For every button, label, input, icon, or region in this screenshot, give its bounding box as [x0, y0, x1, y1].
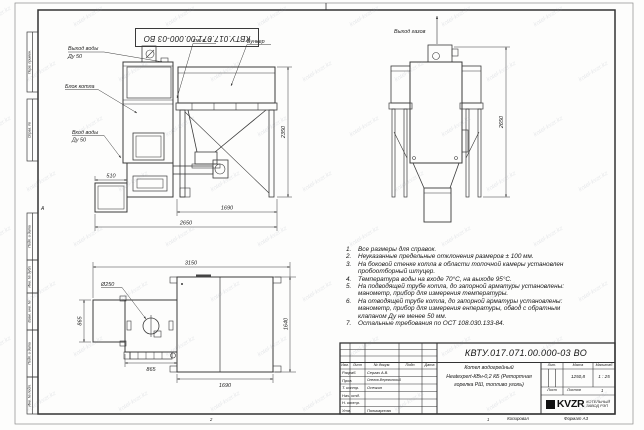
masshtab-value: 1 : 25	[593, 375, 615, 380]
doc-number-rotated: КВТУ.017.071.00.000-03 ВО	[135, 28, 259, 47]
tb-header-massa: Масса	[563, 364, 593, 368]
plan-dimensions	[79, 262, 296, 383]
dim-1690: 1690	[221, 206, 234, 212]
manufacturer-logo: KVZR КОТЕЛЬНЫЙ ЗАВОД РЭП	[542, 395, 614, 413]
margin-label: Взам. инв. №	[28, 300, 32, 322]
tb-header-izm: Изм.	[340, 364, 350, 368]
tb-header-list2: Лист	[541, 389, 563, 393]
margin-label: Перв. примен.	[28, 50, 32, 74]
tb-role: Нач. отд.	[342, 394, 365, 398]
dim-1640: 1640	[284, 317, 290, 330]
note-item: 2.Неуказанные предельные отклонения разм…	[346, 253, 578, 260]
logo-sub2: ЗАВОД РЭП	[586, 404, 610, 408]
label-water-out-dn: Ду 50	[67, 54, 82, 60]
dim-510: 510	[106, 174, 116, 180]
label-gas-out: Выход газов	[394, 29, 426, 35]
zone-col-2: 2	[209, 417, 213, 422]
tb-role: Пров.	[342, 379, 365, 383]
note-item: 7.Остальные требования по ОСТ 108.030.13…	[346, 320, 578, 327]
note-item: 5.На подводящей трубе котла, до запорной…	[346, 283, 578, 298]
tb-header-listov: Листов	[567, 389, 589, 393]
footer-zone-labels: 2 1	[209, 417, 489, 422]
kopiroval-label: Копировал	[498, 417, 538, 421]
dim-2650-side: 2650	[499, 115, 505, 129]
tb-header-data: Дата	[422, 364, 437, 368]
tb-role: Т. контр.	[342, 386, 365, 390]
format-label: Формат А3	[554, 417, 598, 421]
plan-view	[93, 275, 281, 373]
logo-mark-icon	[546, 400, 555, 409]
drawing-sheet: Перв. примен. Справ. № Подп. и дата Инв.…	[0, 0, 644, 430]
margin-box-labels: Перв. примен. Справ. № Подп. и дата Инв.…	[28, 50, 45, 407]
zone-col-1: 1	[487, 417, 489, 422]
tb-header-podp: Подп.	[399, 364, 422, 368]
zone-marker: А	[40, 206, 45, 212]
tb-header-masshtab: Масштаб	[593, 364, 615, 368]
front-view	[95, 46, 277, 212]
dim-2350: 2350	[281, 125, 287, 139]
tb-name: Осечкин	[367, 386, 399, 390]
tb-header-lit: Лит.	[541, 364, 563, 368]
technical-notes: 1.Все размеры для справок. 2.Неуказанные…	[346, 246, 578, 327]
tb-header-list: Лист	[350, 364, 365, 368]
product-name-line3: горелка РШ, топливо уголь)	[437, 383, 541, 388]
label-water-in: Вход воды	[72, 130, 98, 136]
dim-1690-plan: 1690	[219, 383, 232, 389]
product-name-line2: Heatexpert-КВн-0,2 КБ (Ретортная	[437, 375, 541, 380]
logo-brand: KVZR	[557, 398, 584, 410]
title-doc-number: КВТУ.017.071.00.000-03 ВО	[437, 346, 615, 361]
product-name-line1: Котел водогрейный	[437, 366, 541, 371]
note-item: 4.Температура воды на входе 70°С, на вых…	[346, 276, 578, 283]
side-labels: Выход газов 2650	[394, 29, 505, 129]
plan-dim-labels: 3150 1640 865 865 1690 Ø250	[78, 261, 290, 390]
tb-name: Онегов-Вережинский	[367, 379, 399, 382]
margin-label: Справ. №	[28, 122, 32, 138]
note-item: 3.На боковой стенке котла в области топо…	[346, 261, 578, 276]
dim-3150: 3150	[185, 261, 198, 267]
dim-865-bottom: 865	[146, 367, 156, 373]
label-water-out: Выход воды	[68, 46, 98, 52]
dim-865-left: 865	[78, 315, 84, 325]
tb-name: Поликарпова	[367, 409, 399, 413]
label-water-in-dn: Ду 50	[71, 138, 86, 144]
margin-label: Подп. и дата	[28, 225, 32, 248]
margin-label: Инв. № подл.	[28, 384, 32, 406]
tb-role: Утв.	[342, 409, 365, 413]
note-item: 6.На отводящей трубе котла, до запорной …	[346, 298, 578, 320]
tb-role: Н. контр.	[342, 401, 365, 405]
massa-value: 1250,8	[563, 375, 593, 380]
label-boiler-block: Блок котла	[65, 84, 95, 90]
label-diameter-250: Ø250	[100, 282, 114, 288]
dim-2650: 2650	[179, 221, 193, 227]
tb-role: Разраб.	[342, 371, 365, 375]
tb-name: Сергач А.В.	[367, 371, 399, 375]
margin-label: Подп. и дата	[28, 342, 32, 365]
listov-value: 1	[601, 389, 611, 393]
front-dimensions	[95, 67, 292, 231]
margin-label: Инв. № дубл.	[28, 265, 32, 287]
tb-header-dokum: № докум.	[365, 364, 399, 368]
